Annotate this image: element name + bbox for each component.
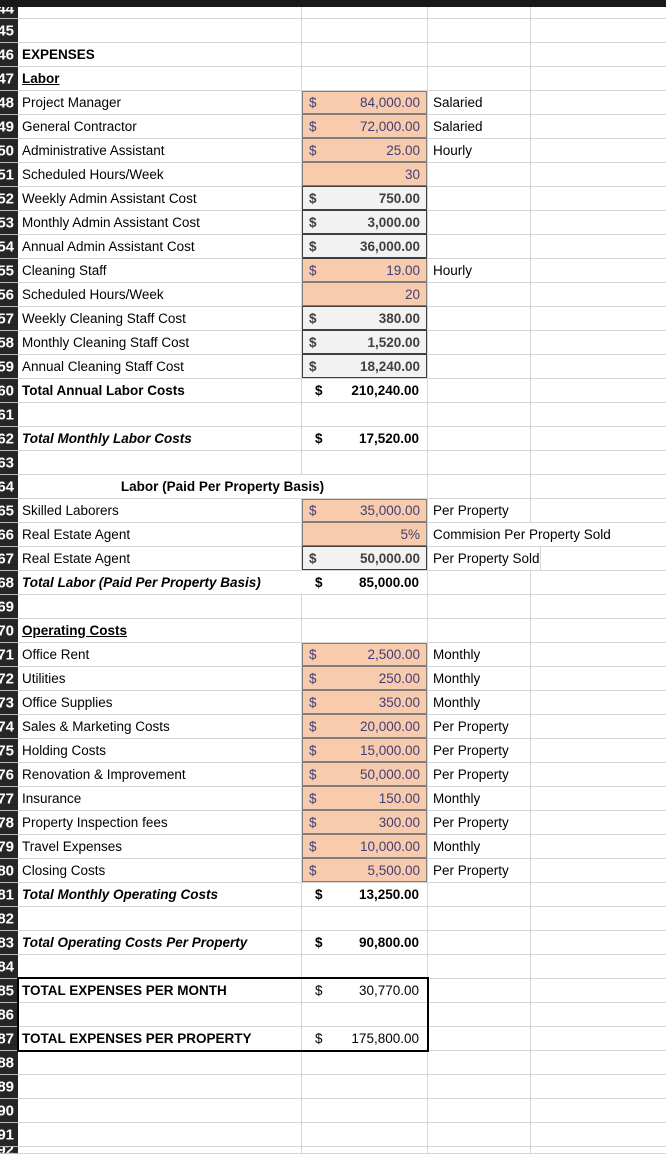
cell-label: Weekly Admin Assistant Cost (22, 191, 197, 206)
cell-b77[interactable]: $150.00 (302, 787, 428, 811)
cell-c53[interactable] (428, 211, 531, 235)
row-header-88[interactable]: 88 (0, 1051, 18, 1075)
cell-b48[interactable]: $84,000.00 (302, 91, 428, 115)
cell-c89[interactable] (428, 1075, 531, 1099)
cell-b76[interactable]: $50,000.00 (302, 763, 428, 787)
cell-b56[interactable]: 20 (302, 283, 428, 307)
row-header-58[interactable]: 58 (0, 331, 18, 355)
row-number: 61 (0, 406, 14, 423)
cell-d82[interactable] (531, 907, 666, 931)
cell-d85[interactable] (531, 979, 666, 1003)
sheet-row-55: 55Cleaning Staff$19.00Hourly (0, 259, 666, 283)
cell-c91[interactable] (428, 1123, 531, 1147)
spreadsheet: 444546EXPENSES47Labor48Project Manager$8… (0, 0, 666, 1154)
cell-label: Monthly Admin Assistant Cost (22, 215, 200, 230)
cell-a59[interactable]: Annual Cleaning Staff Cost (18, 355, 302, 379)
cell-label: Utilities (22, 671, 66, 686)
cell-b53[interactable]: $3,000.00 (302, 211, 428, 235)
cell-a56[interactable]: Scheduled Hours/Week (18, 283, 302, 307)
sheet-row-92: 92 (0, 1147, 666, 1154)
cell-b69[interactable] (302, 595, 428, 619)
row-header-85[interactable]: 85 (0, 979, 18, 1003)
cell-d78[interactable] (531, 811, 666, 835)
cell-b73[interactable]: $350.00 (302, 691, 428, 715)
cell-d64[interactable] (531, 475, 666, 499)
cell-c70[interactable] (428, 619, 531, 643)
cell-a67[interactable]: Real Estate Agent (18, 547, 302, 571)
row-header-79[interactable]: 79 (0, 835, 18, 859)
cell-c80[interactable]: Per Property (428, 859, 531, 883)
cell-a48[interactable]: Project Manager (18, 91, 302, 115)
sheet-row-47: 47Labor (0, 67, 666, 91)
cell-label: Skilled Laborers (22, 503, 119, 518)
cell-b54[interactable]: $36,000.00 (302, 235, 428, 259)
cell-a81[interactable]: Total Monthly Operating Costs (18, 883, 302, 907)
cell-a47[interactable]: Labor (18, 67, 302, 91)
cell-a57[interactable]: Weekly Cleaning Staff Cost (18, 307, 302, 331)
cell-b59[interactable]: $18,240.00 (302, 355, 428, 379)
row-header-92[interactable]: 92 (0, 1147, 18, 1154)
cell-a46[interactable]: EXPENSES (18, 43, 302, 67)
cell-c59[interactable] (428, 355, 531, 379)
cell-b50[interactable]: $25.00 (302, 139, 428, 163)
row-number: 74 (0, 718, 14, 735)
cell-d66[interactable] (611, 523, 666, 547)
row-header-52[interactable]: 52 (0, 187, 18, 211)
cell-a58[interactable]: Monthly Cleaning Staff Cost (18, 331, 302, 355)
currency-symbol: $ (315, 1031, 323, 1046)
cell-a70[interactable]: Operating Costs (18, 619, 302, 643)
cell-a84[interactable] (18, 955, 302, 979)
row-header-49[interactable]: 49 (0, 115, 18, 139)
cell-a85[interactable]: TOTAL EXPENSES PER MONTH (18, 979, 302, 1003)
cell-d81[interactable] (531, 883, 666, 907)
row-header-47[interactable]: 47 (0, 67, 18, 91)
cell-c62[interactable] (428, 427, 531, 451)
cell-a75[interactable]: Holding Costs (18, 739, 302, 763)
cell-a88[interactable] (18, 1051, 302, 1075)
currency-symbol: $ (309, 815, 317, 830)
cell-d57[interactable] (531, 307, 666, 331)
cell-d83[interactable] (531, 931, 666, 955)
row-number: 62 (0, 430, 14, 447)
cell-c48[interactable]: Salaried (428, 91, 531, 115)
cell-d72[interactable] (531, 667, 666, 691)
cell-b88[interactable] (302, 1051, 428, 1075)
row-header-75[interactable]: 75 (0, 739, 18, 763)
cell-b87[interactable]: $175,800.00 (302, 1027, 428, 1051)
sheet-row-90: 90 (0, 1099, 666, 1123)
row-header-76[interactable]: 76 (0, 763, 18, 787)
row-header-77[interactable]: 77 (0, 787, 18, 811)
row-number: 56 (0, 286, 14, 303)
cell-a54[interactable]: Annual Admin Assistant Cost (18, 235, 302, 259)
cell-a91[interactable] (18, 1123, 302, 1147)
cell-d55[interactable] (531, 259, 666, 283)
row-number: 52 (0, 190, 14, 207)
cell-d71[interactable] (531, 643, 666, 667)
cell-c58[interactable] (428, 331, 531, 355)
row-number: 46 (0, 46, 14, 63)
cell-a61[interactable] (18, 403, 302, 427)
row-header-50[interactable]: 50 (0, 139, 18, 163)
cell-a62[interactable]: Total Monthly Labor Costs (18, 427, 302, 451)
cell-a73[interactable]: Office Supplies (18, 691, 302, 715)
cell-b66[interactable]: 5% (302, 523, 428, 547)
cell-c84[interactable] (428, 955, 531, 979)
cell-c88[interactable] (428, 1051, 531, 1075)
cell-a83[interactable]: Total Operating Costs Per Property (18, 931, 302, 955)
cell-label: Closing Costs (22, 863, 105, 878)
cell-a78[interactable]: Property Inspection fees (18, 811, 302, 835)
cell-b91[interactable] (302, 1123, 428, 1147)
cell-label: Total Monthly Labor Costs (22, 431, 192, 446)
cell-a64[interactable]: Labor (Paid Per Property Basis) (18, 475, 428, 499)
cell-b49[interactable]: $72,000.00 (302, 115, 428, 139)
unit-label: Per Property (433, 743, 509, 758)
row-header-68[interactable]: 68 (0, 571, 18, 595)
cell-d56[interactable] (531, 283, 666, 307)
row-header-84[interactable]: 84 (0, 955, 18, 979)
row-number: 72 (0, 670, 14, 687)
cell-d76[interactable] (531, 763, 666, 787)
row-header-86[interactable]: 86 (0, 1003, 18, 1027)
row-header-83[interactable]: 83 (0, 931, 18, 955)
sheet-row-91: 91 (0, 1123, 666, 1147)
cell-d58[interactable] (531, 331, 666, 355)
cell-b67[interactable]: $50,000.00 (302, 547, 428, 571)
row-header-53[interactable]: 53 (0, 211, 18, 235)
cell-c60[interactable] (428, 379, 531, 403)
row-header-89[interactable]: 89 (0, 1075, 18, 1099)
cell-b72[interactable]: $250.00 (302, 667, 428, 691)
row-header-80[interactable]: 80 (0, 859, 18, 883)
cell-a65[interactable]: Skilled Laborers (18, 499, 302, 523)
row-header-87[interactable]: 87 (0, 1027, 18, 1051)
cell-a90[interactable] (18, 1099, 302, 1123)
row-header-46[interactable]: 46 (0, 43, 18, 67)
value-box: $15,000.00 (302, 738, 427, 762)
cell-label: Real Estate Agent (22, 527, 130, 542)
cell-b61[interactable] (302, 403, 428, 427)
cell-value: 300.00 (379, 815, 420, 830)
cell-a68[interactable]: Total Labor (Paid Per Property Basis) (18, 571, 302, 595)
cell-d48[interactable] (531, 91, 666, 115)
cell-d90[interactable] (531, 1099, 666, 1123)
row-header-90[interactable]: 90 (0, 1099, 18, 1123)
row-number: 48 (0, 94, 14, 111)
cell-label: Project Manager (22, 95, 121, 110)
cell-a52[interactable]: Weekly Admin Assistant Cost (18, 187, 302, 211)
value-box: $19.00 (302, 258, 427, 282)
cell-b47[interactable] (302, 67, 428, 91)
cell-d63[interactable] (531, 451, 666, 475)
cell-a51[interactable]: Scheduled Hours/Week (18, 163, 302, 187)
currency-symbol: $ (315, 887, 323, 902)
cell-c50[interactable]: Hourly (428, 139, 531, 163)
cell-d92[interactable] (531, 1147, 666, 1154)
row-header-63[interactable]: 63 (0, 451, 18, 475)
row-header-54[interactable]: 54 (0, 235, 18, 259)
cell-c79[interactable]: Monthly (428, 835, 531, 859)
row-header-56[interactable]: 56 (0, 283, 18, 307)
cell-c56[interactable] (428, 283, 531, 307)
cell-label: Holding Costs (22, 743, 106, 758)
cell-a66[interactable]: Real Estate Agent (18, 523, 302, 547)
cell-d49[interactable] (531, 115, 666, 139)
cell-c63[interactable] (428, 451, 531, 475)
cell-value: 30 (405, 167, 420, 182)
cell-d61[interactable] (531, 403, 666, 427)
cell-c82[interactable] (428, 907, 531, 931)
cell-b83[interactable]: $90,800.00 (302, 931, 428, 955)
cell-b60[interactable]: $210,240.00 (302, 379, 428, 403)
cell-b62[interactable]: $17,520.00 (302, 427, 428, 451)
row-header-62[interactable]: 62 (0, 427, 18, 451)
cell-c92[interactable] (428, 1147, 531, 1154)
currency-symbol: $ (309, 359, 317, 374)
cell-d77[interactable] (531, 787, 666, 811)
cell-d51[interactable] (531, 163, 666, 187)
cell-a49[interactable]: General Contractor (18, 115, 302, 139)
cell-c51[interactable] (428, 163, 531, 187)
cell-c83[interactable] (428, 931, 531, 955)
row-header-61[interactable]: 61 (0, 403, 18, 427)
row-number: 82 (0, 910, 14, 927)
cell-c87[interactable] (428, 1027, 531, 1051)
cell-d74[interactable] (531, 715, 666, 739)
cell-d46[interactable] (531, 43, 666, 67)
cell-c55[interactable]: Hourly (428, 259, 531, 283)
cell-d45[interactable] (531, 19, 666, 43)
cell-c81[interactable] (428, 883, 531, 907)
row-header-60[interactable]: 60 (0, 379, 18, 403)
cell-value: 72,000.00 (360, 119, 420, 134)
cell-a87[interactable]: TOTAL EXPENSES PER PROPERTY (18, 1027, 302, 1051)
row-header-72[interactable]: 72 (0, 667, 18, 691)
row-header-78[interactable]: 78 (0, 811, 18, 835)
cell-a76[interactable]: Renovation & Improvement (18, 763, 302, 787)
row-header-74[interactable]: 74 (0, 715, 18, 739)
cell-c57[interactable] (428, 307, 531, 331)
cell-c52[interactable] (428, 187, 531, 211)
cell-b57[interactable]: $380.00 (302, 307, 428, 331)
cell-b85[interactable]: $30,770.00 (302, 979, 428, 1003)
unit-label: Commision Per Property Sold (433, 527, 611, 542)
row-header-45[interactable]: 45 (0, 19, 18, 43)
currency-symbol: $ (309, 191, 317, 206)
unit-label: Per Property (433, 503, 509, 518)
cell-a53[interactable]: Monthly Admin Assistant Cost (18, 211, 302, 235)
cell-c78[interactable]: Per Property (428, 811, 531, 835)
row-header-71[interactable]: 71 (0, 643, 18, 667)
cell-b75[interactable]: $15,000.00 (302, 739, 428, 763)
cell-d47[interactable] (531, 67, 666, 91)
cell-d70[interactable] (531, 619, 666, 643)
row-header-73[interactable]: 73 (0, 691, 18, 715)
cell-d50[interactable] (531, 139, 666, 163)
cell-a86[interactable] (18, 1003, 302, 1027)
cell-c75[interactable]: Per Property (428, 739, 531, 763)
cell-a55[interactable]: Cleaning Staff (18, 259, 302, 283)
cell-b89[interactable] (302, 1075, 428, 1099)
cell-d88[interactable] (531, 1051, 666, 1075)
cell-d69[interactable] (531, 595, 666, 619)
row-number: 80 (0, 862, 14, 879)
cell-d75[interactable] (531, 739, 666, 763)
cell-c46[interactable] (428, 43, 531, 67)
cell-c90[interactable] (428, 1099, 531, 1123)
currency-symbol: $ (309, 95, 317, 110)
row-header-82[interactable]: 82 (0, 907, 18, 931)
sheet-row-80: 80Closing Costs$5,500.00Per Property (0, 859, 666, 883)
cell-c65[interactable]: Per Property (428, 499, 531, 523)
row-header-91[interactable]: 91 (0, 1123, 18, 1147)
cell-d73[interactable] (531, 691, 666, 715)
cell-c64[interactable] (428, 475, 531, 499)
cell-a80[interactable]: Closing Costs (18, 859, 302, 883)
row-header-51[interactable]: 51 (0, 163, 18, 187)
row-number: 57 (0, 310, 14, 327)
cell-c68[interactable] (428, 571, 531, 595)
cell-c69[interactable] (428, 595, 531, 619)
row-number: 50 (0, 142, 14, 159)
cell-a63[interactable] (18, 451, 302, 475)
cell-d59[interactable] (531, 355, 666, 379)
cell-b79[interactable]: $10,000.00 (302, 835, 428, 859)
cell-b74[interactable]: $20,000.00 (302, 715, 428, 739)
row-header-65[interactable]: 65 (0, 499, 18, 523)
cell-d79[interactable] (531, 835, 666, 859)
currency-symbol: $ (309, 863, 317, 878)
cell-b45[interactable] (302, 19, 428, 43)
cell-c86[interactable] (428, 1003, 531, 1027)
cell-d80[interactable] (531, 859, 666, 883)
cell-value: 1,520.00 (367, 335, 420, 350)
cell-a50[interactable]: Administrative Assistant (18, 139, 302, 163)
cell-b65[interactable]: $35,000.00 (302, 499, 428, 523)
cell-c71[interactable]: Monthly (428, 643, 531, 667)
cell-d91[interactable] (531, 1123, 666, 1147)
row-number: 69 (0, 598, 14, 615)
cell-label: General Contractor (22, 119, 137, 134)
cell-b55[interactable]: $19.00 (302, 259, 428, 283)
row-number: 70 (0, 622, 14, 639)
cell-d54[interactable] (531, 235, 666, 259)
cell-label: Scheduled Hours/Week (22, 167, 164, 182)
row-header-66[interactable]: 66 (0, 523, 18, 547)
cell-c45[interactable] (428, 19, 531, 43)
cell-a60[interactable]: Total Annual Labor Costs (18, 379, 302, 403)
cell-d68[interactable] (531, 571, 666, 595)
cell-a69[interactable] (18, 595, 302, 619)
cell-a77[interactable]: Insurance (18, 787, 302, 811)
row-number: 71 (0, 646, 14, 663)
cell-c76[interactable]: Per Property (428, 763, 531, 787)
row-header-81[interactable]: 81 (0, 883, 18, 907)
row-header-69[interactable]: 69 (0, 595, 18, 619)
row-header-67[interactable]: 67 (0, 547, 18, 571)
cell-a71[interactable]: Office Rent (18, 643, 302, 667)
cell-value: 750.00 (379, 191, 420, 206)
row-number: 47 (0, 70, 14, 87)
cell-b68[interactable]: $85,000.00 (302, 571, 428, 595)
row-header-64[interactable]: 64 (0, 475, 18, 499)
cell-d84[interactable] (531, 955, 666, 979)
sheet-row-79: 79Travel Expenses$10,000.00Monthly (0, 835, 666, 859)
row-header-55[interactable]: 55 (0, 259, 18, 283)
row-number: 59 (0, 358, 14, 375)
cell-c61[interactable] (428, 403, 531, 427)
value-box: $18,240.00 (302, 354, 427, 378)
cell-d65[interactable] (531, 499, 666, 523)
cell-d87[interactable] (531, 1027, 666, 1051)
cell-c77[interactable]: Monthly (428, 787, 531, 811)
cell-d86[interactable] (531, 1003, 666, 1027)
cell-d52[interactable] (531, 187, 666, 211)
cell-b63[interactable] (302, 451, 428, 475)
cell-a45[interactable] (18, 19, 302, 43)
cell-b80[interactable]: $5,500.00 (302, 859, 428, 883)
cell-d67[interactable] (541, 547, 666, 571)
cell-b70[interactable] (302, 619, 428, 643)
row-number: 64 (0, 478, 14, 495)
cell-c74[interactable]: Per Property (428, 715, 531, 739)
cell-c73[interactable]: Monthly (428, 691, 531, 715)
cell-d62[interactable] (531, 427, 666, 451)
cell-b84[interactable] (302, 955, 428, 979)
cell-a89[interactable] (18, 1075, 302, 1099)
cell-value: 5,500.00 (367, 863, 420, 878)
row-header-70[interactable]: 70 (0, 619, 18, 643)
cell-d89[interactable] (531, 1075, 666, 1099)
cell-b71[interactable]: $2,500.00 (302, 643, 428, 667)
cell-b58[interactable]: $1,520.00 (302, 331, 428, 355)
cell-b81[interactable]: $13,250.00 (302, 883, 428, 907)
cell-d53[interactable] (531, 211, 666, 235)
cell-b92[interactable] (302, 1147, 428, 1154)
row-number: 77 (0, 790, 14, 807)
cell-a92[interactable] (18, 1147, 302, 1154)
cell-b51[interactable]: 30 (302, 163, 428, 187)
cell-a72[interactable]: Utilities (18, 667, 302, 691)
sheet-row-75: 75Holding Costs$15,000.00Per Property (0, 739, 666, 763)
row-header-59[interactable]: 59 (0, 355, 18, 379)
cell-a79[interactable]: Travel Expenses (18, 835, 302, 859)
row-header-57[interactable]: 57 (0, 307, 18, 331)
row-header-48[interactable]: 48 (0, 91, 18, 115)
cell-b90[interactable] (302, 1099, 428, 1123)
cell-c67[interactable]: Per Property Sold (428, 547, 541, 571)
cell-b52[interactable]: $750.00 (302, 187, 428, 211)
cell-b86[interactable] (302, 1003, 428, 1027)
cell-b46[interactable] (302, 43, 428, 67)
cell-c47[interactable] (428, 67, 531, 91)
cell-c85[interactable] (428, 979, 531, 1003)
cell-b82[interactable] (302, 907, 428, 931)
value-box: 30 (302, 162, 427, 186)
cell-a82[interactable] (18, 907, 302, 931)
cell-b78[interactable]: $300.00 (302, 811, 428, 835)
cell-a74[interactable]: Sales & Marketing Costs (18, 715, 302, 739)
cell-c54[interactable] (428, 235, 531, 259)
cell-c49[interactable]: Salaried (428, 115, 531, 139)
cell-d60[interactable] (531, 379, 666, 403)
cell-label: Operating Costs (22, 623, 127, 638)
cell-c72[interactable]: Monthly (428, 667, 531, 691)
cell-c66[interactable]: Commision Per Property Sold (428, 523, 611, 547)
section-divider-bar (0, 0, 666, 7)
